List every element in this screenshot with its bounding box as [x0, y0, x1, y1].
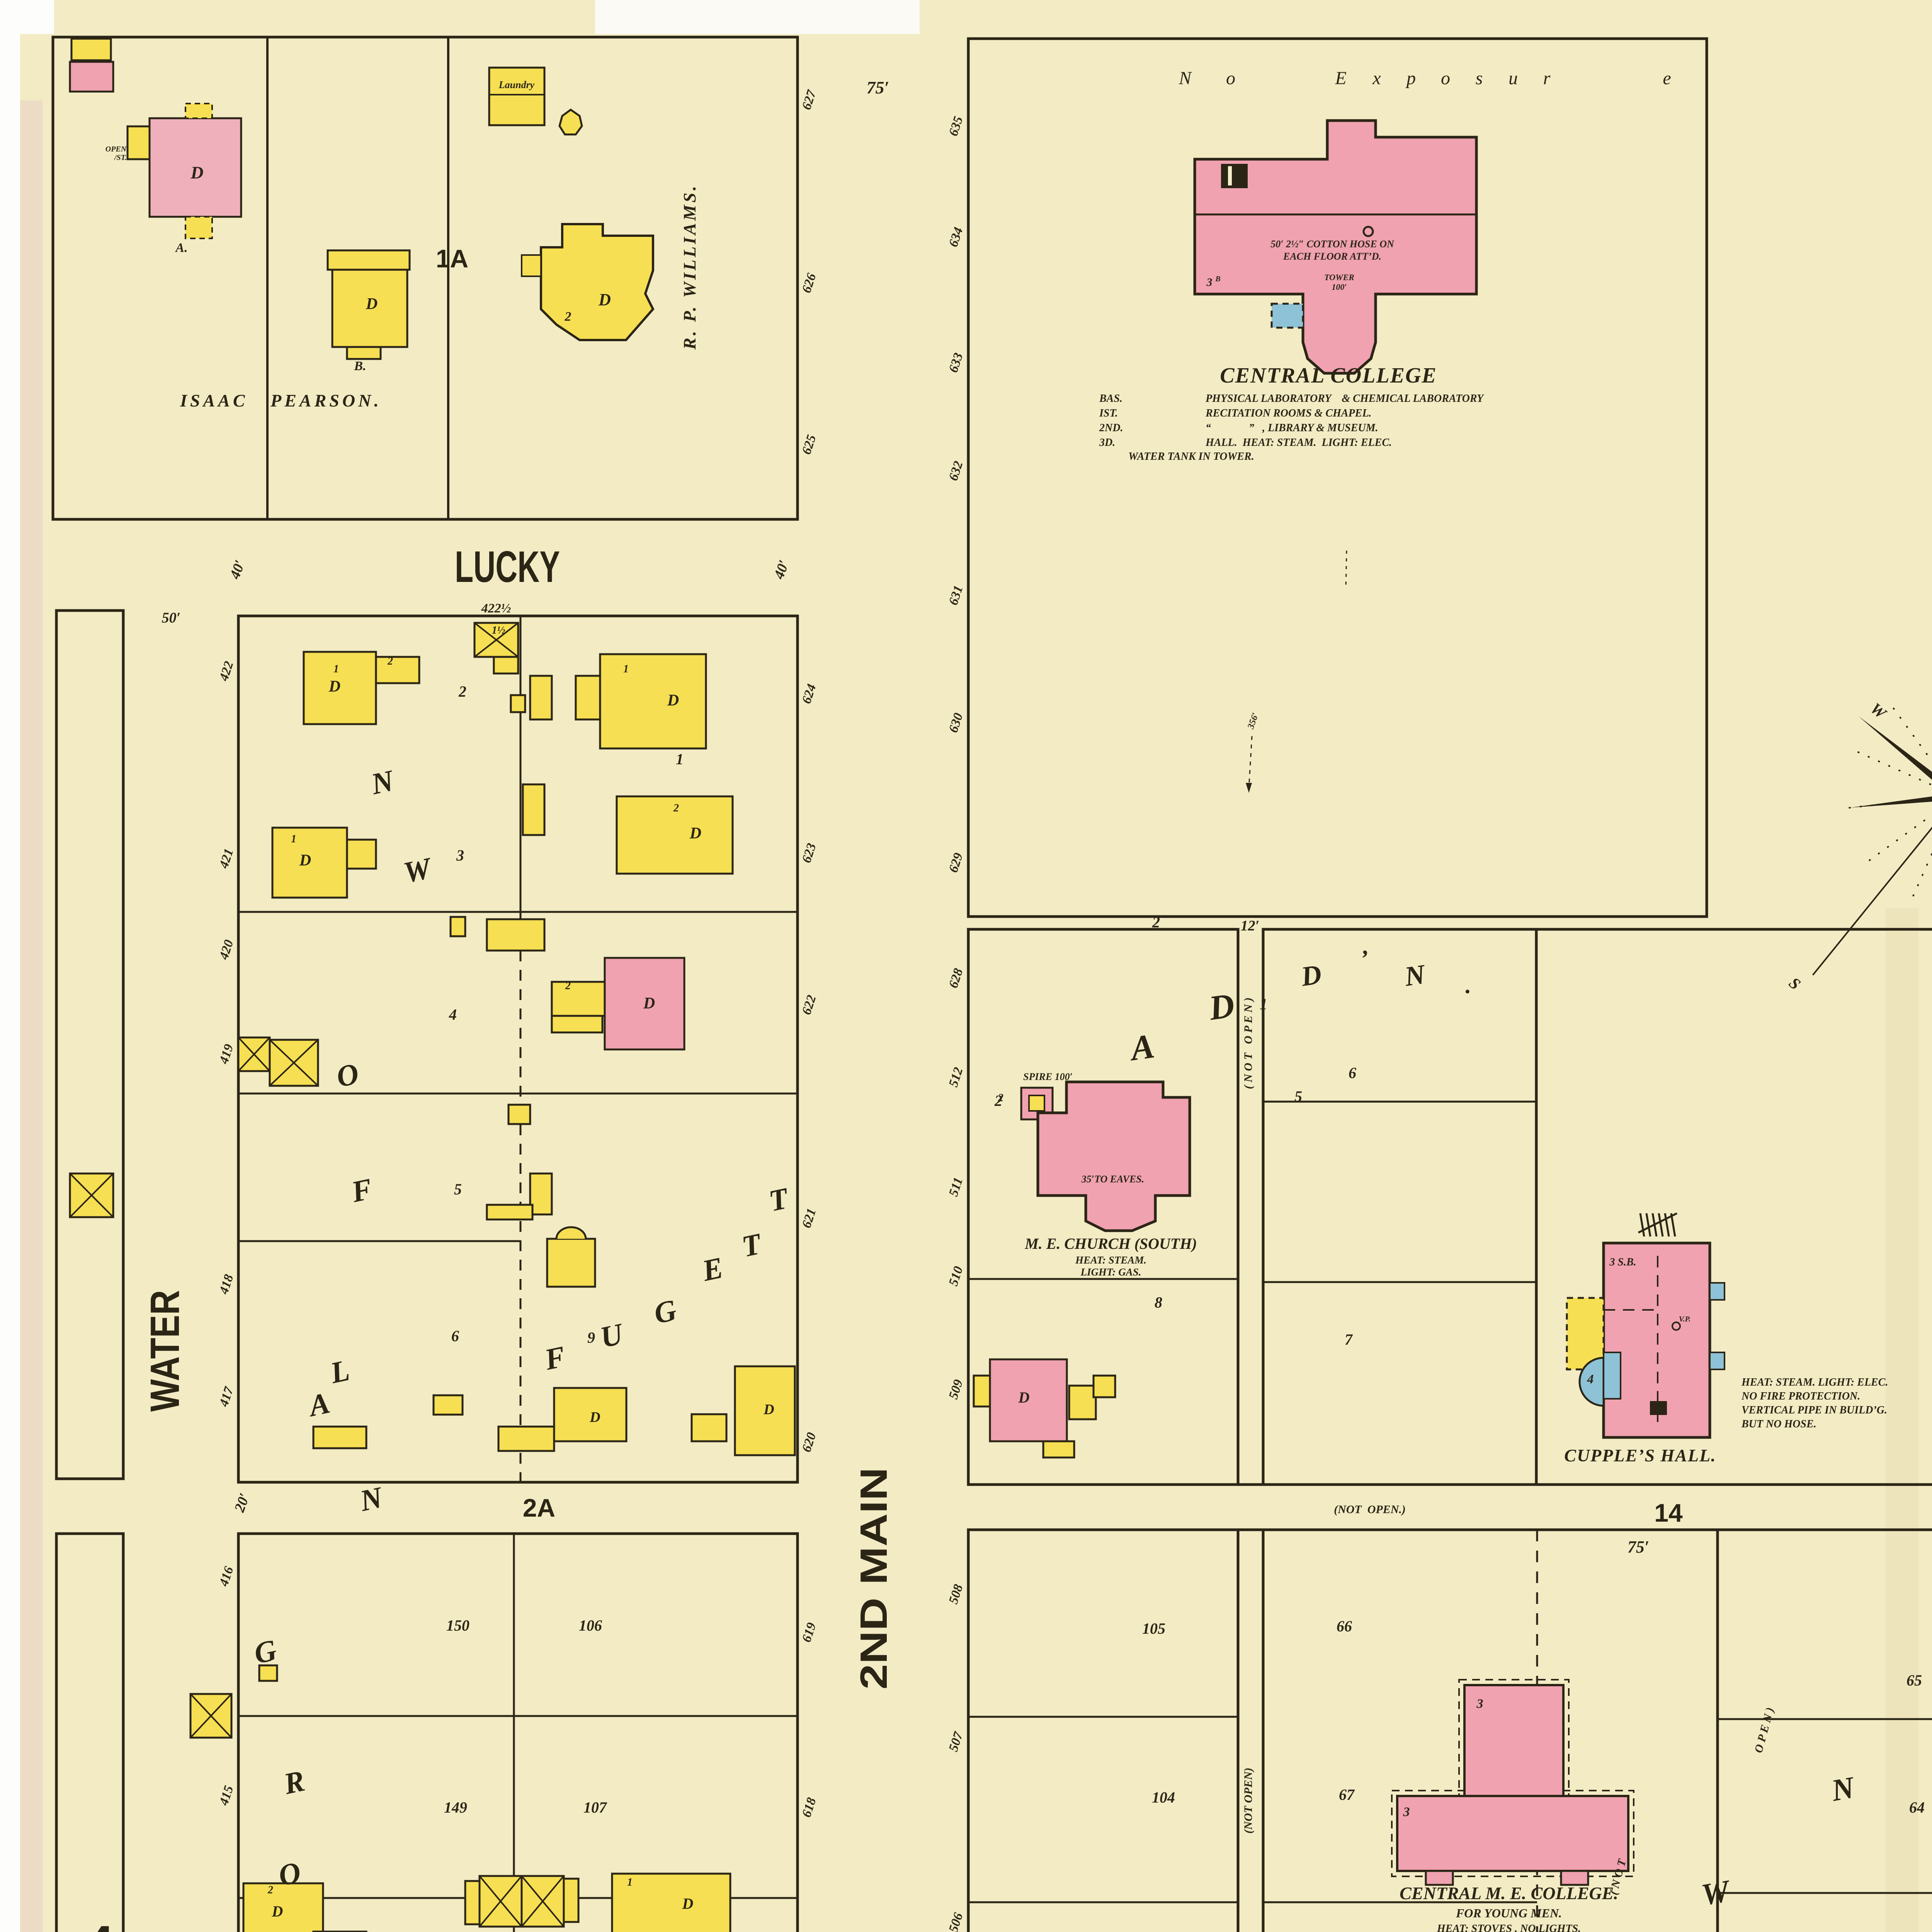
svg-text:’: ’ — [1360, 946, 1368, 971]
svg-text:HEAT: STOVES . NO LIGHTS.: HEAT: STOVES . NO LIGHTS. — [1437, 1923, 1581, 1932]
svg-text:2: 2 — [565, 980, 571, 992]
svg-text:2: 2 — [1152, 913, 1160, 931]
svg-text:1: 1 — [1260, 995, 1267, 1013]
svg-text:D: D — [1018, 1389, 1030, 1406]
svg-text:2: 2 — [267, 1884, 273, 1896]
svg-text:2: 2 — [565, 310, 571, 324]
svg-text:107: 107 — [583, 1799, 607, 1816]
svg-text:2A: 2A — [523, 1493, 555, 1522]
svg-text:o: o — [1226, 68, 1235, 88]
svg-text:OPEN: OPEN — [105, 145, 127, 153]
svg-text:2: 2 — [673, 802, 679, 814]
svg-text:r: r — [1543, 68, 1551, 88]
svg-text:D: D — [299, 852, 311, 869]
svg-text:6: 6 — [451, 1327, 459, 1345]
svg-text:3D.: 3D. — [1099, 437, 1115, 449]
svg-text:D: D — [190, 163, 203, 182]
svg-text:3: 3 — [1403, 1805, 1410, 1819]
svg-text:p: p — [1405, 68, 1416, 88]
svg-text:IST.: IST. — [1099, 407, 1118, 419]
svg-text:50′: 50′ — [162, 610, 181, 626]
svg-text:“ ” , LIBRARY &: “ ” , LIBRARY & MUSEUM. — [1206, 422, 1378, 434]
svg-text:D: D — [689, 825, 701, 842]
svg-text:1: 1 — [623, 663, 629, 675]
svg-text:4: 4 — [1587, 1372, 1594, 1386]
svg-text:/ST.: /ST. — [114, 153, 127, 162]
svg-text:CUPPLE’S HALL.: CUPPLE’S HALL. — [1564, 1446, 1716, 1465]
svg-text:1½: 1½ — [492, 624, 505, 636]
svg-text:67: 67 — [1339, 1786, 1355, 1803]
svg-text:3: 3 — [1476, 1697, 1483, 1711]
svg-text:e: e — [1663, 68, 1671, 88]
svg-text:NO FIRE PROTECTION.: NO FIRE PROTECTION. — [1741, 1390, 1860, 1402]
svg-text:35′TO EAVES.: 35′TO EAVES. — [1081, 1173, 1144, 1185]
svg-text:5: 5 — [1294, 1088, 1302, 1105]
svg-text:M. E. CHURCH (SOUTH): M. E. CHURCH (SOUTH) — [1024, 1235, 1197, 1252]
svg-text:6: 6 — [1349, 1064, 1356, 1082]
svg-text:3: 3 — [1206, 276, 1213, 289]
svg-text:2: 2 — [387, 655, 393, 667]
svg-text:4: 4 — [80, 1910, 115, 1932]
svg-text:.: . — [1466, 973, 1471, 998]
svg-text:VERTICAL PIPE IN BUILD’G.: VERTICAL PIPE IN BUILD’G. — [1742, 1404, 1887, 1416]
svg-text:V.P.: V.P. — [1679, 1315, 1690, 1323]
svg-text:R. P. WILLIAMS.: R. P. WILLIAMS. — [680, 184, 699, 350]
svg-text:FOR YOUNG MEN.: FOR YOUNG MEN. — [1456, 1906, 1562, 1920]
svg-text:1: 1 — [676, 750, 684, 768]
svg-text:LIGHT: GAS.: LIGHT: GAS. — [1080, 1266, 1141, 1278]
svg-text:66: 66 — [1337, 1617, 1352, 1635]
svg-text:150: 150 — [446, 1617, 469, 1634]
svg-text:2ND MAIN: 2ND MAIN — [852, 1468, 895, 1690]
svg-text:WATER TANK IN TOWER.: WATER TANK IN TOWER. — [1128, 451, 1254, 463]
svg-text:75′: 75′ — [867, 78, 889, 97]
svg-text:104: 104 — [1152, 1789, 1175, 1806]
svg-text:D: D — [667, 692, 679, 709]
svg-text:ISAAC PEARSON.: ISAAC PEARSON. — [180, 391, 382, 410]
svg-text:x: x — [1372, 68, 1381, 88]
svg-text:(NOT OPEN.): (NOT OPEN.) — [1334, 1503, 1406, 1516]
svg-text:B: B — [1215, 275, 1220, 283]
svg-text:TOWER: TOWER — [1324, 272, 1354, 282]
svg-text:65: 65 — [1906, 1672, 1922, 1689]
svg-text:1: 1 — [627, 1876, 633, 1888]
svg-text:RECITATION ROOMS & CHAPEL.: RECITATION ROOMS & CHAPEL. — [1205, 407, 1371, 419]
svg-text:WATER: WATER — [142, 1290, 188, 1412]
svg-text:8: 8 — [1155, 1294, 1162, 1311]
svg-text:CENTRAL COLLEGE: CENTRAL COLLEGE — [1220, 364, 1437, 388]
svg-text:D: D — [1299, 959, 1323, 992]
svg-text:14: 14 — [1654, 1498, 1683, 1527]
svg-text:D: D — [589, 1409, 600, 1425]
svg-text:3 S.B.: 3 S.B. — [1609, 1256, 1636, 1268]
svg-text:BAS.: BAS. — [1099, 393, 1122, 405]
svg-text:422½: 422½ — [481, 601, 511, 616]
svg-text:100′: 100′ — [1332, 282, 1347, 292]
svg-text:2: 2 — [458, 683, 466, 700]
svg-text:D: D — [643, 995, 655, 1012]
svg-text:LUCKY: LUCKY — [455, 543, 560, 592]
svg-text:HALL. HEAT: STEAM. LIGHT: EL: HALL. HEAT: STEAM. LIGHT: ELEC. — [1205, 437, 1392, 449]
svg-text:D: D — [272, 1903, 283, 1920]
svg-text:4: 4 — [449, 1006, 457, 1023]
svg-text:7: 7 — [1345, 1331, 1353, 1348]
svg-text:5: 5 — [454, 1180, 462, 1198]
svg-text:HEAT: STEAM. LIGHT: ELEC.: HEAT: STEAM. LIGHT: ELEC. — [1741, 1376, 1888, 1388]
svg-text:s: s — [1476, 68, 1483, 88]
svg-text:CENTRAL M. E. COLLEGE.: CENTRAL M. E. COLLEGE. — [1400, 1883, 1618, 1903]
svg-text:BUT NO HOSE.: BUT NO HOSE. — [1741, 1418, 1816, 1430]
svg-text:o: o — [1441, 68, 1450, 88]
svg-text:D: D — [763, 1401, 774, 1418]
svg-text:105: 105 — [1142, 1620, 1165, 1637]
svg-text:149: 149 — [444, 1799, 467, 1816]
svg-text:64: 64 — [1909, 1799, 1925, 1816]
svg-text:D: D — [1206, 986, 1237, 1027]
svg-text:2ND.: 2ND. — [1099, 422, 1123, 434]
svg-text:( N O T O P E N ): ( N O T O P E N ) — [1242, 997, 1255, 1089]
svg-text:1: 1 — [333, 663, 339, 675]
svg-text:9: 9 — [587, 1329, 595, 1346]
svg-text:u: u — [1509, 68, 1518, 88]
svg-text:EACH FLOOR ATT’D.: EACH FLOOR ATT’D. — [1283, 251, 1381, 262]
svg-text:B.: B. — [354, 359, 366, 373]
svg-text:E: E — [1335, 68, 1346, 88]
svg-text:1: 1 — [291, 833, 296, 845]
svg-text:A.: A. — [175, 241, 187, 255]
svg-text:2: 2 — [998, 1092, 1003, 1104]
svg-text:1A: 1A — [436, 244, 468, 273]
svg-text:12′: 12′ — [1241, 918, 1260, 934]
svg-text:HEAT: STEAM.: HEAT: STEAM. — [1075, 1254, 1146, 1266]
svg-text:N: N — [1179, 68, 1192, 88]
svg-text:50′ 2½″ COTTON HOSE ON: 50′ 2½″ COTTON HOSE ON — [1270, 238, 1395, 250]
svg-text:106: 106 — [579, 1617, 602, 1634]
svg-text:3: 3 — [456, 847, 464, 864]
svg-text:D: D — [328, 678, 340, 696]
svg-text:75′: 75′ — [1628, 1537, 1649, 1556]
svg-text:D: D — [598, 290, 611, 309]
svg-text:D: D — [682, 1895, 694, 1912]
svg-text:D: D — [366, 295, 378, 313]
svg-text:PHYSICAL LABORATORY & CHEMI: PHYSICAL LABORATORY & CHEMICAL LABORATOR… — [1205, 393, 1485, 405]
svg-text:(NOT OPEN): (NOT OPEN) — [1242, 1768, 1255, 1834]
svg-text:Laundry: Laundry — [498, 79, 535, 90]
